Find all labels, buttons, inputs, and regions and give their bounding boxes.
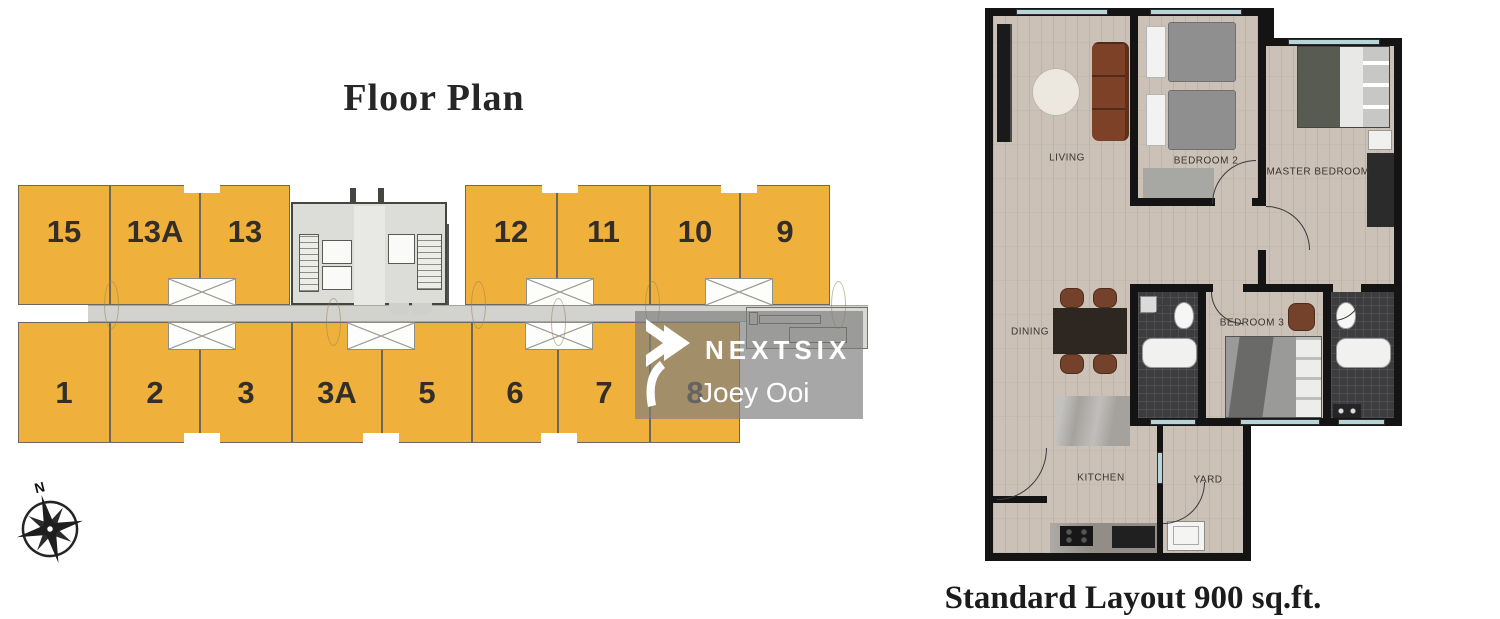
bath2-vanity (1333, 404, 1361, 418)
pillow (1146, 94, 1166, 146)
duvet (1168, 90, 1236, 150)
yard-label: YARD (1193, 475, 1222, 486)
wall (1361, 284, 1398, 292)
master-bed (1297, 46, 1390, 128)
window (1150, 419, 1196, 425)
nextsix-logo-icon (640, 317, 704, 413)
wall (990, 553, 1251, 561)
washing-machine (1167, 521, 1205, 551)
dining-chair (1060, 354, 1084, 374)
wardrobe (1367, 153, 1397, 227)
dining-chair (1093, 354, 1117, 374)
window (1288, 39, 1380, 45)
bedroom3-chair (1288, 303, 1315, 331)
window (1240, 419, 1320, 425)
bed-single-1 (1144, 22, 1236, 82)
duvet (1168, 22, 1236, 82)
watermark: NEXTSIX Joey Ooi (635, 311, 863, 419)
kitchen-sink-unit (1112, 526, 1155, 548)
washer-door (1173, 526, 1199, 545)
wall (1198, 292, 1206, 418)
wall (1243, 426, 1251, 557)
living-label: LIVING (1049, 153, 1085, 164)
dining-chair (1060, 288, 1084, 308)
pillows (1363, 47, 1389, 127)
window (1338, 419, 1385, 425)
watermark-brand: NEXTSIX (705, 335, 851, 366)
wall (1138, 198, 1215, 206)
exterior (1251, 426, 1394, 553)
window (1157, 452, 1163, 484)
apartment-plan: LIVING BEDROOM 2 MASTER BEDROOM DINING B… (0, 0, 1500, 619)
bedroom3-bed (1225, 336, 1322, 418)
bath1-toilet (1174, 302, 1194, 329)
sofa (1092, 42, 1129, 141)
bedroom2-mat (1143, 168, 1214, 198)
wall (1323, 292, 1331, 418)
gray-rug (1055, 396, 1130, 446)
wall (1130, 284, 1213, 292)
wall (1243, 284, 1333, 292)
nightstand (1368, 130, 1392, 150)
bath1-tub (1142, 338, 1197, 368)
dining-label: DINING (1011, 327, 1049, 338)
master-bedroom-label: MASTER BEDROOM (1266, 167, 1369, 178)
bedroom2-label: BEDROOM 2 (1174, 156, 1239, 167)
blanket (1298, 47, 1340, 127)
wall (985, 8, 993, 561)
bed-single-2 (1144, 90, 1236, 150)
watermark-agent: Joey Ooi (699, 377, 810, 409)
exterior (1274, 16, 1394, 38)
sheet (1340, 47, 1363, 127)
layout-caption: Standard Layout 900 sq.ft. (938, 580, 1328, 617)
bath2-tub (1336, 338, 1391, 368)
wall (1394, 38, 1402, 426)
window (1150, 9, 1242, 15)
tv-cabinet (997, 24, 1012, 142)
pillow (1146, 26, 1166, 78)
wall (1130, 292, 1138, 426)
floor-plan-page: Floor Plan N (0, 0, 1500, 619)
pillows (1296, 337, 1321, 417)
dining-table (1053, 308, 1127, 354)
wall (1258, 16, 1266, 206)
kitchen-label: KITCHEN (1077, 473, 1124, 484)
round-rug (1033, 69, 1079, 115)
wall (1130, 16, 1138, 206)
stove (1060, 526, 1093, 546)
window (1016, 9, 1108, 15)
dining-chair (1093, 288, 1117, 308)
bedroom3-label: BEDROOM 3 (1220, 318, 1285, 329)
